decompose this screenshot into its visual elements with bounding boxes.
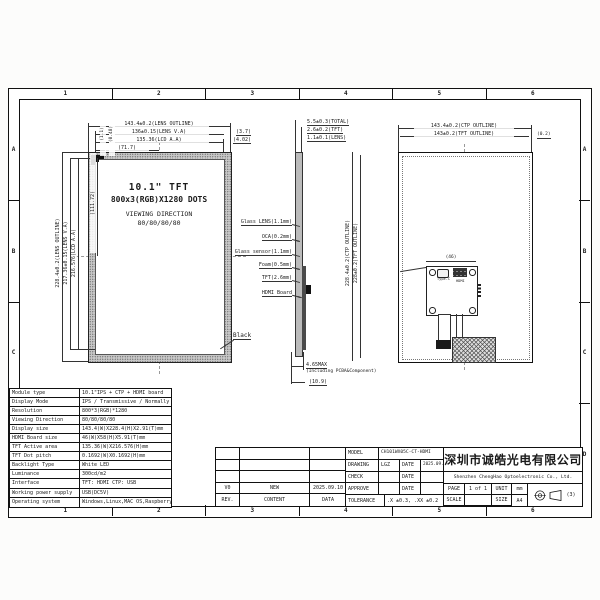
dim-lcd-aa-height: 216.576(LCD A.A) xyxy=(71,203,77,303)
dim-bottom-max-thickness: 4.65MAX xyxy=(306,362,327,369)
size-value: A4 xyxy=(512,495,528,506)
rev-cell xyxy=(310,460,346,472)
spec-value: 135.36(W)X216.576(H)mm xyxy=(80,443,171,452)
company-name-cn: 深圳市诚皓光电有限公司 xyxy=(444,448,582,472)
approve-label: APPROVE xyxy=(346,483,379,494)
extension-line xyxy=(223,139,224,152)
dim-lens-va-height: 217.36±0.15(LENS V.A) xyxy=(63,203,69,303)
dimension-line xyxy=(291,382,305,383)
spec-label: TFT Dot pitch xyxy=(10,452,80,461)
dim-ctp-outline-height: 228.4±0.2(CTP OUTLINE) xyxy=(345,203,351,303)
extension-line xyxy=(531,125,532,152)
extension-line xyxy=(398,125,399,152)
revision-block: V0NEW2025.09.10 REV.CONTENTDATA xyxy=(215,447,347,507)
rev-cell xyxy=(216,471,240,483)
hdmi-connector-label: HDMI xyxy=(456,279,465,283)
frame-col-label: 5 xyxy=(393,88,487,99)
rev-cell xyxy=(310,471,346,483)
date-label: DATE xyxy=(400,460,421,471)
frame-row-label: B xyxy=(8,201,19,303)
dimension-line xyxy=(426,261,476,262)
dim-edge-gap-1: (3.7) xyxy=(236,129,251,136)
dim-lcd-aa-width: 135.36(LCD A.A) xyxy=(109,137,209,143)
dimension-line xyxy=(360,155,361,358)
frame-col-label: 6 xyxy=(487,88,580,99)
third-angle-projection-icon xyxy=(534,489,564,502)
extension-line xyxy=(303,352,304,370)
mounting-hole xyxy=(429,307,436,314)
page-label: PAGE xyxy=(444,484,465,495)
panel-resolution-label: 800x3(RGB)X1280 DOTS xyxy=(94,194,224,205)
stack-label-glass-sensor: Glass sensor(1.1mm) xyxy=(235,249,292,256)
check-label: CHECK xyxy=(346,472,379,483)
side-view-connector xyxy=(306,285,311,294)
spec-table: Module type10.1"IPS + CTP + HDMI board D… xyxy=(9,388,172,508)
spec-value: 10.1"IPS + CTP + HDMI board xyxy=(80,389,171,398)
scale-label: SCALE xyxy=(444,495,465,506)
crosshatch-region xyxy=(452,337,496,363)
spec-value: Windows,Linux,MAC OS,Raspberry Pi,etc xyxy=(80,498,171,507)
panel-size-label: 10.1" TFT xyxy=(94,182,224,194)
dim-bottom-width: (10.9) xyxy=(309,379,327,386)
dimension-line xyxy=(97,158,98,256)
pin-header xyxy=(478,284,481,298)
type-c-connector-label: Type-C xyxy=(437,277,450,281)
spec-label: Working power supply xyxy=(10,489,80,498)
extension-line xyxy=(62,361,88,362)
hdmi-connector xyxy=(453,268,467,277)
check-date xyxy=(421,472,444,483)
spec-value: 143.4(W)X228.4(H)X2.91(T)mm xyxy=(80,425,171,434)
dimension-line xyxy=(78,158,79,349)
spec-value: 300cd/m2 xyxy=(80,470,171,479)
stack-label-oca: OCA(0.2mm) xyxy=(262,234,292,241)
stack-label-tft: TFT(2.6mm) xyxy=(262,275,292,282)
title-block-model: MODEL CH101WX05C-CT-HDMI DRAWING LGZ DAT… xyxy=(345,447,445,507)
extension-line xyxy=(88,123,89,152)
mounting-hole xyxy=(469,269,476,276)
rev-cell xyxy=(310,448,346,460)
drawing-author: LGZ xyxy=(379,460,400,471)
rev-version: V0 xyxy=(216,483,240,495)
front-view-caption: 10.1" TFT 800x3(RGB)X1280 DOTS VIEWING D… xyxy=(94,182,224,228)
viewing-angle-values: 80/80/80/80 xyxy=(94,219,224,228)
spec-value: 0.1692(W)X0.1692(H)mm xyxy=(80,452,171,461)
datasheet-page: 1 2 3 4 5 6 1 2 3 4 5 6 A B C D A B C D … xyxy=(0,0,600,600)
dim-bottom-note: (Including PCBA&Component) xyxy=(306,369,376,375)
date-label: DATE xyxy=(400,483,421,494)
drawing-date: 2025.09.10 xyxy=(421,460,444,471)
dimension-line xyxy=(291,366,303,367)
dim-lens-thickness: 1.1±0.1(LENS) xyxy=(307,135,346,142)
dim-half-height: (111.72) xyxy=(90,153,96,253)
dim-total-thickness: 5.5±0.3(TOTAL) xyxy=(307,119,349,126)
extension-line xyxy=(295,120,296,152)
rev-date: 2025.09.10 xyxy=(310,483,346,495)
frame-col-label: 2 xyxy=(113,88,207,99)
extension-line xyxy=(301,127,302,152)
dim-tft-thickness: 2.6±0.2(TFT) xyxy=(307,127,343,134)
black-bezel-callout: Black xyxy=(233,333,251,340)
company-name-en: Shenzhen ChengHao Optoelectronic Co., Lt… xyxy=(444,472,582,484)
dim-tft-outline-height: 228±0.2(TFT OUTLINE) xyxy=(353,203,359,303)
mounting-hole xyxy=(429,269,436,276)
projection-symbol-cell: (3) xyxy=(528,484,582,506)
rev-header-content: CONTENT xyxy=(240,494,310,506)
spec-label: Interface xyxy=(10,479,80,488)
spec-label: Backlight Type xyxy=(10,461,80,470)
tolerance-label: TOLERANCE xyxy=(346,495,385,506)
spec-label: Luminance xyxy=(10,470,80,479)
spec-value: TFT: HDMI CTP: USB xyxy=(80,479,171,488)
spec-value: 80/80/80/80 xyxy=(80,416,171,425)
frame-col-label: 3 xyxy=(206,88,300,99)
stack-label-hdmi-board: HDMI Board xyxy=(262,290,292,297)
dim-lens-outline-height: 228.4±0.2(LENS OUTLINE) xyxy=(55,203,61,303)
dim-corner-1: (1.1) xyxy=(100,112,106,156)
page-value: 1 of 1 xyxy=(465,484,492,495)
dim-edge-gap-rear: (0.2) xyxy=(537,132,551,139)
spec-label: HDMI Board size xyxy=(10,434,80,443)
unit-label: UNIT xyxy=(492,484,512,495)
approve-date xyxy=(421,483,444,494)
spec-value: 46(W)X58(H)X5.91(T)mm xyxy=(80,434,171,443)
spec-label: Resolution xyxy=(10,407,80,416)
unit-value: mm xyxy=(512,484,528,495)
backlight-wires xyxy=(456,314,463,338)
dim-corner-2: (0.48) xyxy=(109,112,115,156)
spec-label: Viewing Direction xyxy=(10,416,80,425)
scale-value xyxy=(465,495,492,506)
extension-line xyxy=(62,152,88,153)
frame-row-label: A xyxy=(8,99,19,201)
stack-label-foam: Foam(0.5mm) xyxy=(259,262,292,269)
side-view-hdmi-board xyxy=(302,266,306,350)
dim-lens-outline-width: 143.4±0.2(LENS OUTLINE) xyxy=(109,121,209,127)
model-label: MODEL xyxy=(346,448,379,459)
size-label: SIZE xyxy=(492,495,512,506)
spec-label: Display Mode xyxy=(10,398,80,407)
frame-col-label: 1 xyxy=(19,88,113,99)
rev-cell xyxy=(240,471,310,483)
viewing-direction-label: VIEWING DIRECTION xyxy=(94,210,224,219)
model-number: CH101WX05C-CT-HDMI xyxy=(379,448,444,459)
frame-col-label: 4 xyxy=(300,88,394,99)
tolerance-value: .X ±0.3, .XX ±0.2 xyxy=(385,495,444,506)
stack-label-glass-lens: Glass LENS(1.1mm) xyxy=(241,219,292,226)
check-author xyxy=(379,472,400,483)
rev-cell xyxy=(240,460,310,472)
rev-cell xyxy=(216,448,240,460)
date-label: DATE xyxy=(400,472,421,483)
spec-value: USB(DC5V) xyxy=(80,489,171,498)
dim-edge-gap-2: (4.02) xyxy=(233,137,251,144)
rev-cell xyxy=(216,460,240,472)
spec-label: TFT Active area xyxy=(10,443,80,452)
spec-value: White LED xyxy=(80,461,171,470)
drawing-label: DRAWING xyxy=(346,460,379,471)
rev-cell xyxy=(240,448,310,460)
spec-value: IPS / Transmissive / Normally black xyxy=(80,398,171,407)
extension-line xyxy=(230,123,231,152)
spec-value: 800*3(RGB)*1280 xyxy=(80,407,171,416)
rev-header-date: DATA xyxy=(310,494,346,506)
spec-label: Module type xyxy=(10,389,80,398)
dim-lens-va-width: 136±0.15(LENS V.A) xyxy=(109,129,209,135)
dim-board-width: (46) xyxy=(436,255,466,261)
fpc-connector xyxy=(436,340,451,349)
extension-line xyxy=(70,349,95,350)
dim-tft-outline-width: 143±0.2(TFT OUTLINE) xyxy=(414,131,514,137)
frame-column-ruler-top: 1 2 3 4 5 6 xyxy=(19,88,579,99)
dim-ctp-outline-width: 143.4±0.2(CTP OUTLINE) xyxy=(414,123,514,129)
spec-label: Operating system xyxy=(10,498,80,507)
mounting-hole xyxy=(469,307,476,314)
projection-note: (3) xyxy=(566,492,575,498)
title-block-company: 深圳市诚皓光电有限公司 Shenzhen ChengHao Optoelectr… xyxy=(443,447,583,507)
rev-header-rev: REV. xyxy=(216,494,240,506)
extension-line xyxy=(291,352,292,384)
rev-content: NEW xyxy=(240,483,310,495)
approve-author xyxy=(379,483,400,494)
hdmi-board: Type-C HDMI xyxy=(426,266,478,316)
spec-label: Display size xyxy=(10,425,80,434)
